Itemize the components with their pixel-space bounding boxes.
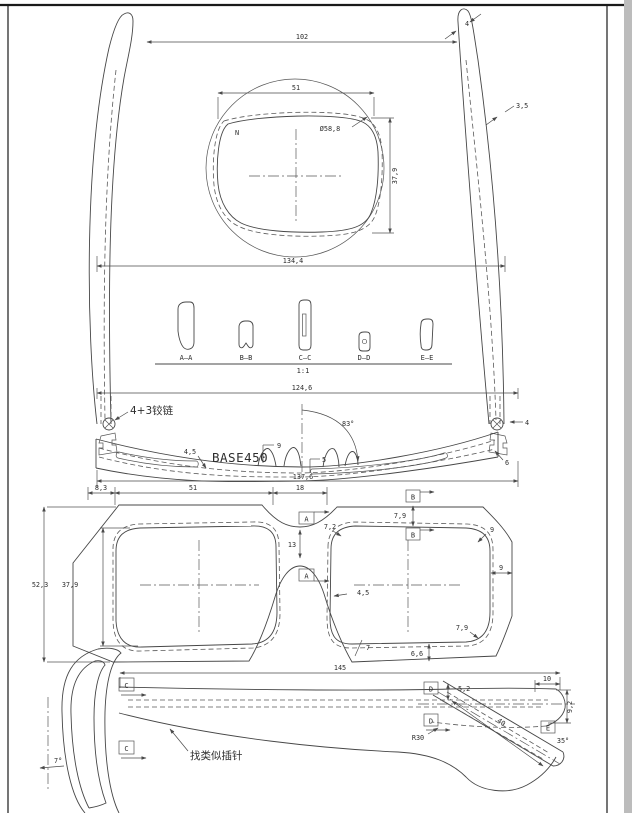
dim-hinge-inset: 6	[505, 459, 509, 467]
dim-temple-span: 102	[296, 33, 308, 41]
page-edge-strip	[624, 0, 632, 813]
dim-bend-radius: R30	[412, 734, 424, 742]
dim-corner-top: 9	[490, 526, 494, 534]
dim-front-thickness: 4,5	[184, 448, 196, 456]
dim-temple-width: 4	[525, 419, 529, 427]
dim-rim-bottom: 6,6	[411, 650, 423, 658]
dim-lens-height-front: 37,9	[62, 581, 78, 589]
dim-tip-angle: 35°	[557, 737, 569, 745]
dim-bridge-thickness: 13	[288, 541, 296, 549]
section-d-label: D—D	[358, 354, 371, 362]
dim-frame-height: 52,3	[32, 581, 48, 589]
section-c-label: C—C	[299, 354, 312, 362]
marker-e: E	[546, 725, 550, 733]
temple-bottom-edge	[119, 713, 556, 791]
dim-pad-depth: 5	[322, 456, 326, 464]
dim-lens-width-front: 51	[189, 484, 197, 492]
dim-rim-bottom-left: 7	[366, 644, 370, 652]
section-c-slot	[303, 314, 307, 336]
dim-circle-leader	[352, 117, 367, 127]
dim-rim-top: 7,9	[394, 512, 406, 520]
section-a-shape	[178, 302, 194, 349]
dim-tip-end: 10	[543, 675, 551, 683]
section-d-shape	[359, 332, 370, 351]
nose-pad-arc-2	[284, 448, 301, 466]
left-lens-dashed	[113, 522, 280, 651]
right-temple-outline	[458, 9, 504, 424]
dim-overall-width: 134,4	[283, 257, 303, 265]
dim-rim-side: 9	[499, 564, 503, 572]
dim-temple-thickness-arrow	[486, 117, 497, 125]
marker-c-bottom: C	[124, 745, 128, 753]
dim-front-tilt: 7°	[54, 757, 62, 765]
section-b-label: B—B	[240, 354, 253, 362]
front-bar-top-edge	[96, 432, 498, 467]
section-views: A—A B—B C—C D—D E—E 1:1	[155, 300, 452, 375]
lens-mark: N	[235, 129, 239, 137]
dim-tip-thickness: 4	[465, 20, 469, 28]
dim-front-width: 137,6	[293, 473, 313, 481]
frame-outline	[73, 505, 512, 662]
side-view: 145 7° C C 找类似插针	[40, 648, 575, 813]
section-b-shape	[239, 321, 253, 348]
dim-temple-length: 145	[334, 664, 346, 672]
dim-lens-height: 37,9	[391, 168, 399, 184]
top-view: 124,6 9 5	[96, 384, 529, 487]
marker-d-top: D	[429, 686, 433, 694]
section-e-shape	[420, 319, 433, 350]
base-curve-label: BASE450	[212, 450, 268, 465]
dim-open-angle: 83°	[342, 420, 354, 428]
dim-temple-thickness: 3,5	[516, 102, 528, 110]
dim-pad-height: 9	[277, 442, 281, 450]
dim-lens-circle: Ø58,8	[320, 125, 340, 133]
front-bar-slot-right	[311, 453, 448, 474]
scale-label: 1:1	[297, 367, 310, 375]
left-temple-outline	[89, 13, 133, 424]
dim-end-piece: 8,3	[95, 484, 107, 492]
drawing-page: 102 4 3,5 N Ø58,8 51 37,9 134,4	[0, 0, 632, 813]
left-hinge	[99, 418, 117, 455]
dim-bridge: 18	[296, 484, 304, 492]
pin-note: 找类似插针	[190, 749, 243, 762]
front-view: 8,3 51 18 52,3 37,9 A A 13 7,2 B	[32, 484, 512, 662]
marker-d-bottom: D	[429, 718, 433, 726]
lens-blank-circle	[206, 79, 384, 257]
dim-tip-height: 5,2	[458, 685, 470, 693]
dim-temple-thickness-leader	[505, 106, 514, 112]
right-temple-core	[466, 60, 496, 420]
dim-corner-bottom: 7,9	[456, 624, 468, 632]
front-profile	[62, 648, 121, 813]
section-e-label: E—E	[421, 354, 434, 362]
hinge-note: 4+3铰链	[130, 404, 174, 417]
section-c-shape	[299, 300, 311, 350]
dim-rim-nose: 4,5	[357, 589, 369, 597]
section-a-label: A—A	[180, 354, 193, 362]
eyewear-technical-drawing: 102 4 3,5 N Ø58,8 51 37,9 134,4	[0, 0, 632, 813]
dim-tip-arrow-1	[445, 31, 456, 39]
marker-a-top: A	[304, 516, 309, 524]
marker-c-top: C	[124, 682, 128, 690]
left-lens-opening	[116, 526, 277, 647]
dim-lens-width: 51	[292, 84, 300, 92]
lens-shape-solid	[217, 116, 378, 232]
dim-hinge-span: 124,6	[292, 384, 312, 392]
marker-b-top: B	[411, 494, 415, 502]
dim-rim-inner-top: 7,2	[324, 523, 336, 531]
marker-b-bottom: B	[411, 532, 415, 540]
dim-tip-drop: 9,2	[566, 701, 574, 713]
marker-a-bottom: A	[304, 573, 309, 581]
dim-tip-arrow-2	[470, 14, 481, 22]
section-d-hole	[362, 339, 366, 343]
